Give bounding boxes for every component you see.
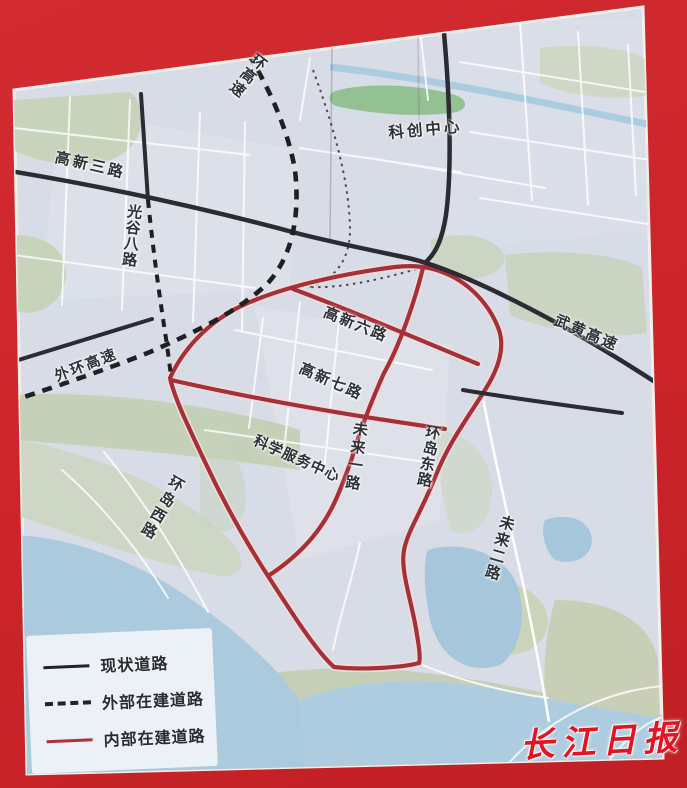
legend-swatch-solid-black <box>43 664 89 669</box>
legend-item-internal-under-construction: 内部在建道路 <box>46 722 217 753</box>
legend-swatch-solid-red <box>47 738 93 743</box>
legend-label: 内部在建道路 <box>103 722 206 750</box>
legend-item-external-under-construction: 外部在建道路 <box>44 685 215 716</box>
legend-label: 外部在建道路 <box>101 685 204 713</box>
legend-swatch-dashed-black <box>45 700 91 706</box>
changjiang-daily-watermark: 长江日报 <box>519 710 685 768</box>
map-photo: 环高速 高新三路 光谷八路 科创中心 武黄高速 外环高速 高新六路 高新七路 科… <box>0 0 687 788</box>
legend-panel: 现状道路 外部在建道路 内部在建道路 <box>26 628 218 774</box>
legend-item-existing-road: 现状道路 <box>43 648 214 679</box>
legend-label: 现状道路 <box>100 650 169 677</box>
